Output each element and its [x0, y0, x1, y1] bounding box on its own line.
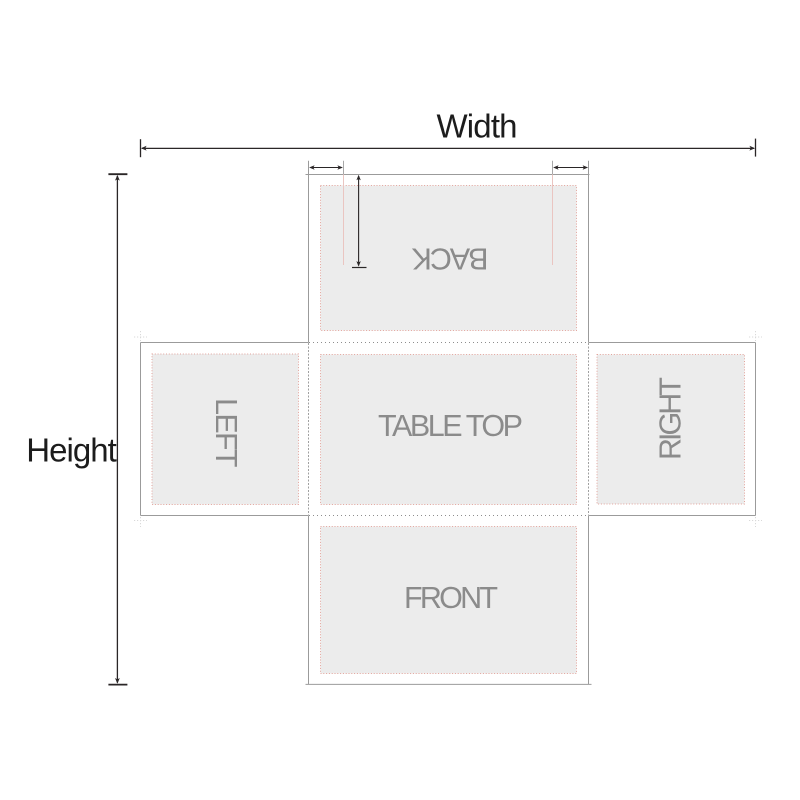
svg-text:RIGHT: RIGHT [654, 377, 688, 460]
svg-text:Width: Width [437, 108, 518, 145]
svg-text:TABLE TOP: TABLE TOP [378, 409, 523, 443]
svg-text:FRONT: FRONT [404, 581, 498, 615]
svg-text:BACK: BACK [412, 242, 489, 276]
svg-text:LEFT: LEFT [209, 398, 243, 468]
svg-text:Height: Height [26, 432, 117, 469]
